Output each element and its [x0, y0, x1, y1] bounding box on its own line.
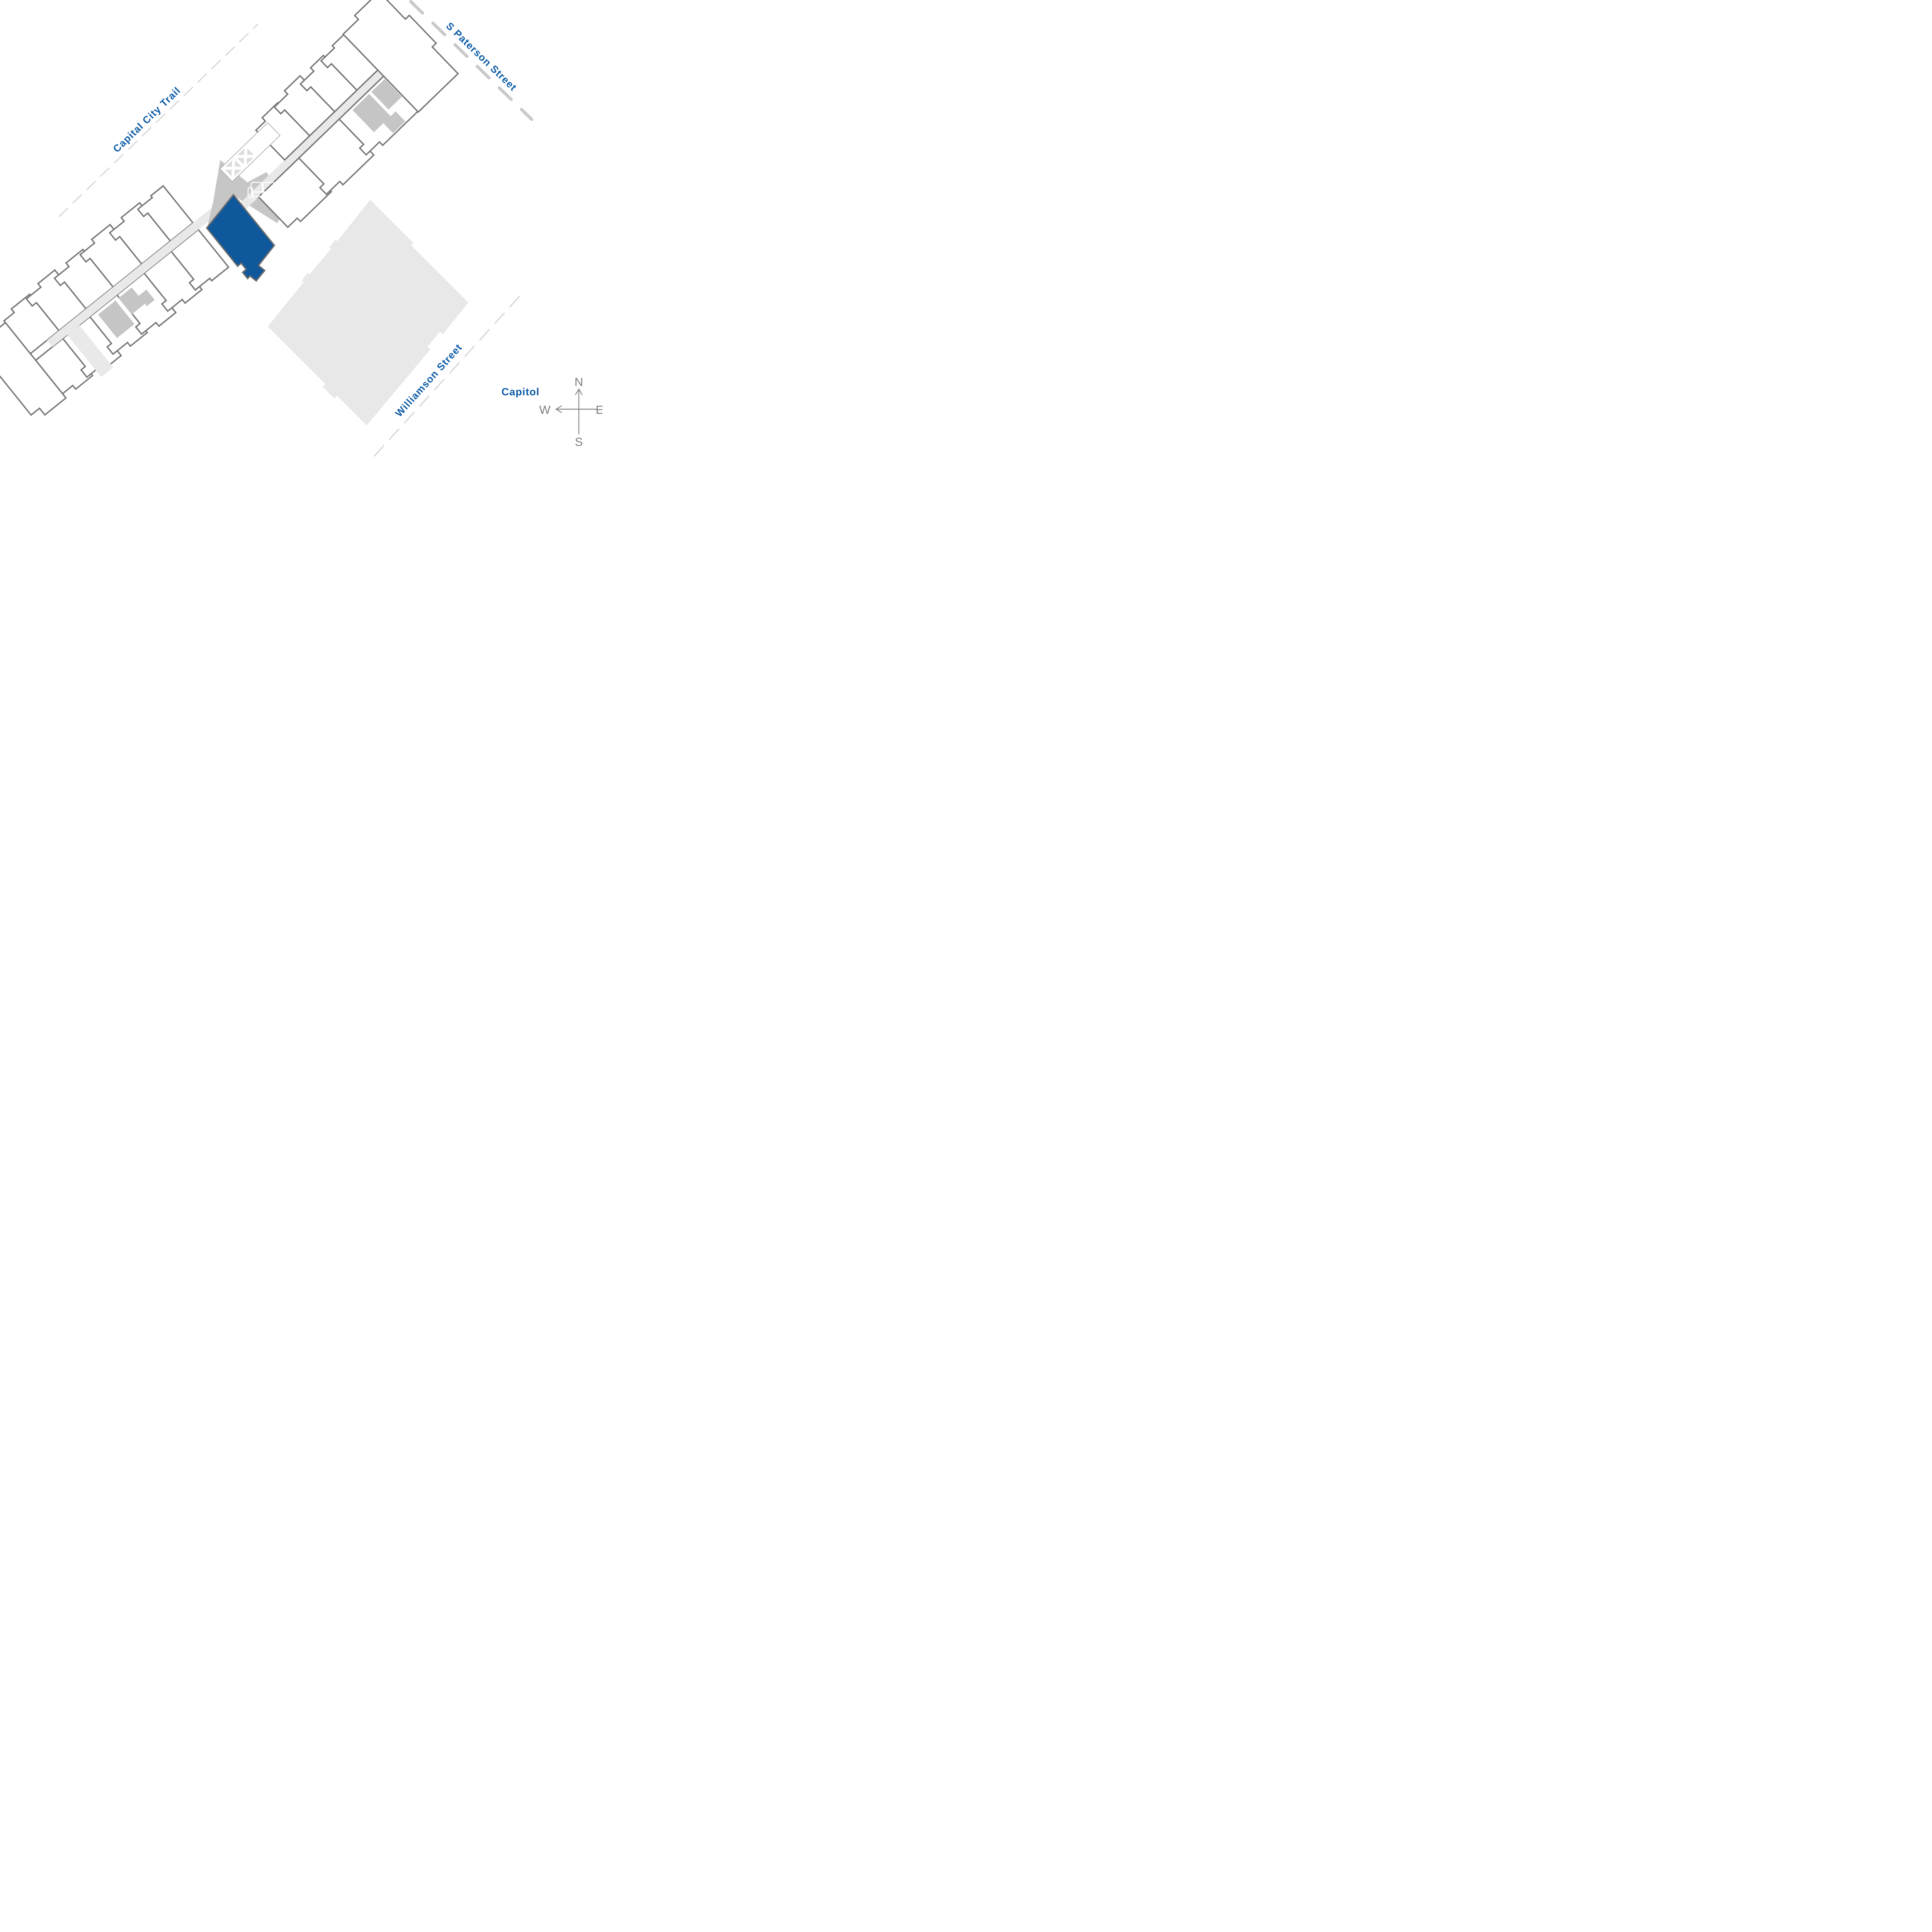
- compass-letter-north: N: [575, 375, 583, 389]
- compass-letter-east: E: [596, 403, 602, 417]
- stair-strip: [220, 122, 280, 182]
- landmark-label-capitol: Capitol: [502, 386, 540, 398]
- compass-rose: N S W E: [539, 375, 602, 449]
- site-plan-page: Capital City Trail S Paterson Street Wil…: [0, 0, 602, 457]
- floor-plan-svg: Capital City Trail S Paterson Street Wil…: [0, 0, 602, 457]
- neighbor-building-footprint: [268, 200, 468, 425]
- compass-letter-south: S: [575, 435, 583, 449]
- street-label-s-paterson-street: S Paterson Street: [444, 20, 519, 94]
- compass-letter-west: W: [539, 403, 551, 417]
- street-label-capital-city-trail: Capital City Trail: [111, 85, 183, 155]
